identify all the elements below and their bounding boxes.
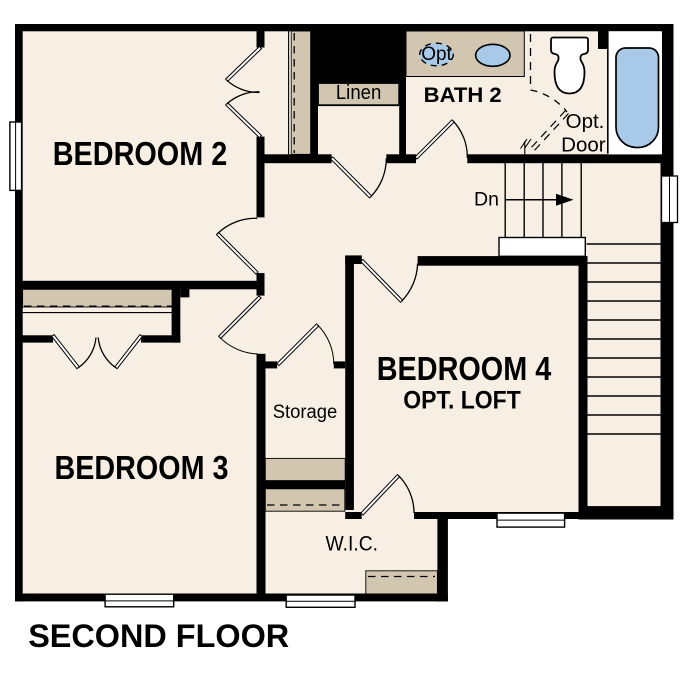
svg-text:OPT. LOFT: OPT. LOFT (403, 387, 521, 415)
svg-text:BEDROOM 3: BEDROOM 3 (55, 450, 229, 487)
svg-text:W.I.C.: W.I.C. (326, 532, 379, 556)
svg-text:SECOND FLOOR: SECOND FLOOR (28, 618, 289, 654)
svg-text:Opt.: Opt. (566, 110, 605, 133)
svg-text:Door: Door (561, 133, 606, 156)
svg-text:BEDROOM 2: BEDROOM 2 (53, 136, 228, 173)
svg-text:Dn: Dn (474, 189, 499, 211)
svg-text:Storage: Storage (273, 402, 338, 423)
svg-text:BATH 2: BATH 2 (424, 83, 502, 107)
svg-text:Linen: Linen (336, 82, 382, 104)
svg-text:Opt: Opt (421, 44, 452, 65)
svg-text:BEDROOM 4: BEDROOM 4 (377, 351, 552, 388)
